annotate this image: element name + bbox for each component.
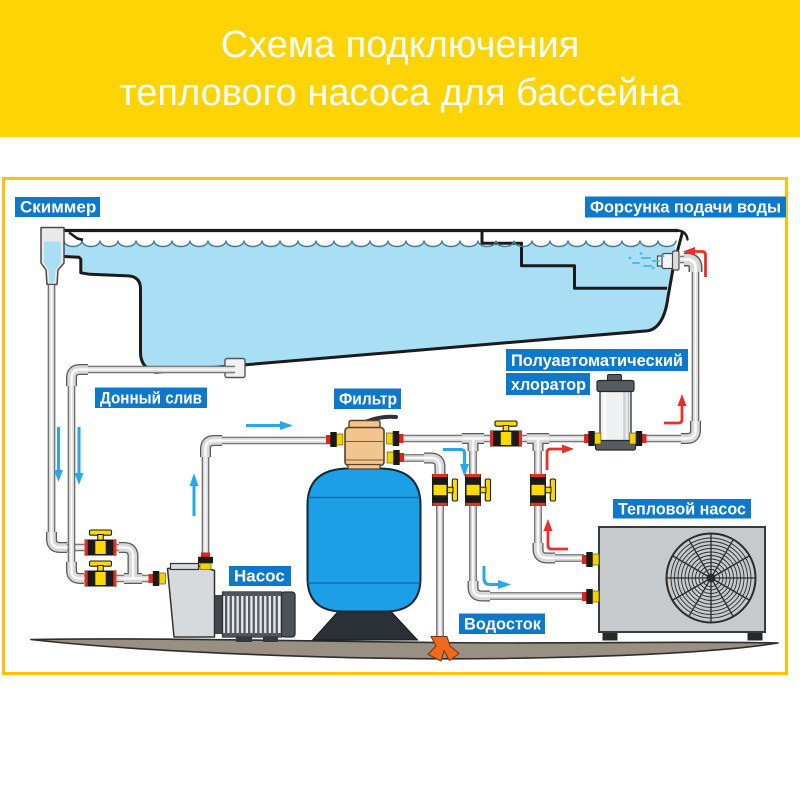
svg-text:Фильтр: Фильтр xyxy=(339,390,397,409)
svg-text:Полуавтоматический: Полуавтоматический xyxy=(511,351,683,370)
svg-text:Насос: Насос xyxy=(234,567,285,586)
svg-text:хлоратор: хлоратор xyxy=(511,375,586,394)
svg-text:Схема подключения: Схема подключения xyxy=(221,24,580,66)
svg-text:Форсунка подачи воды: Форсунка подачи воды xyxy=(590,198,781,217)
svg-text:Скиммер: Скиммер xyxy=(20,198,96,217)
svg-text:теплового насоса для бассейна: теплового насоса для бассейна xyxy=(119,72,681,114)
svg-text:Тепловой насос: Тепловой насос xyxy=(618,500,746,519)
svg-text:Донный слив: Донный слив xyxy=(100,389,202,408)
svg-text:Водосток: Водосток xyxy=(464,615,541,634)
